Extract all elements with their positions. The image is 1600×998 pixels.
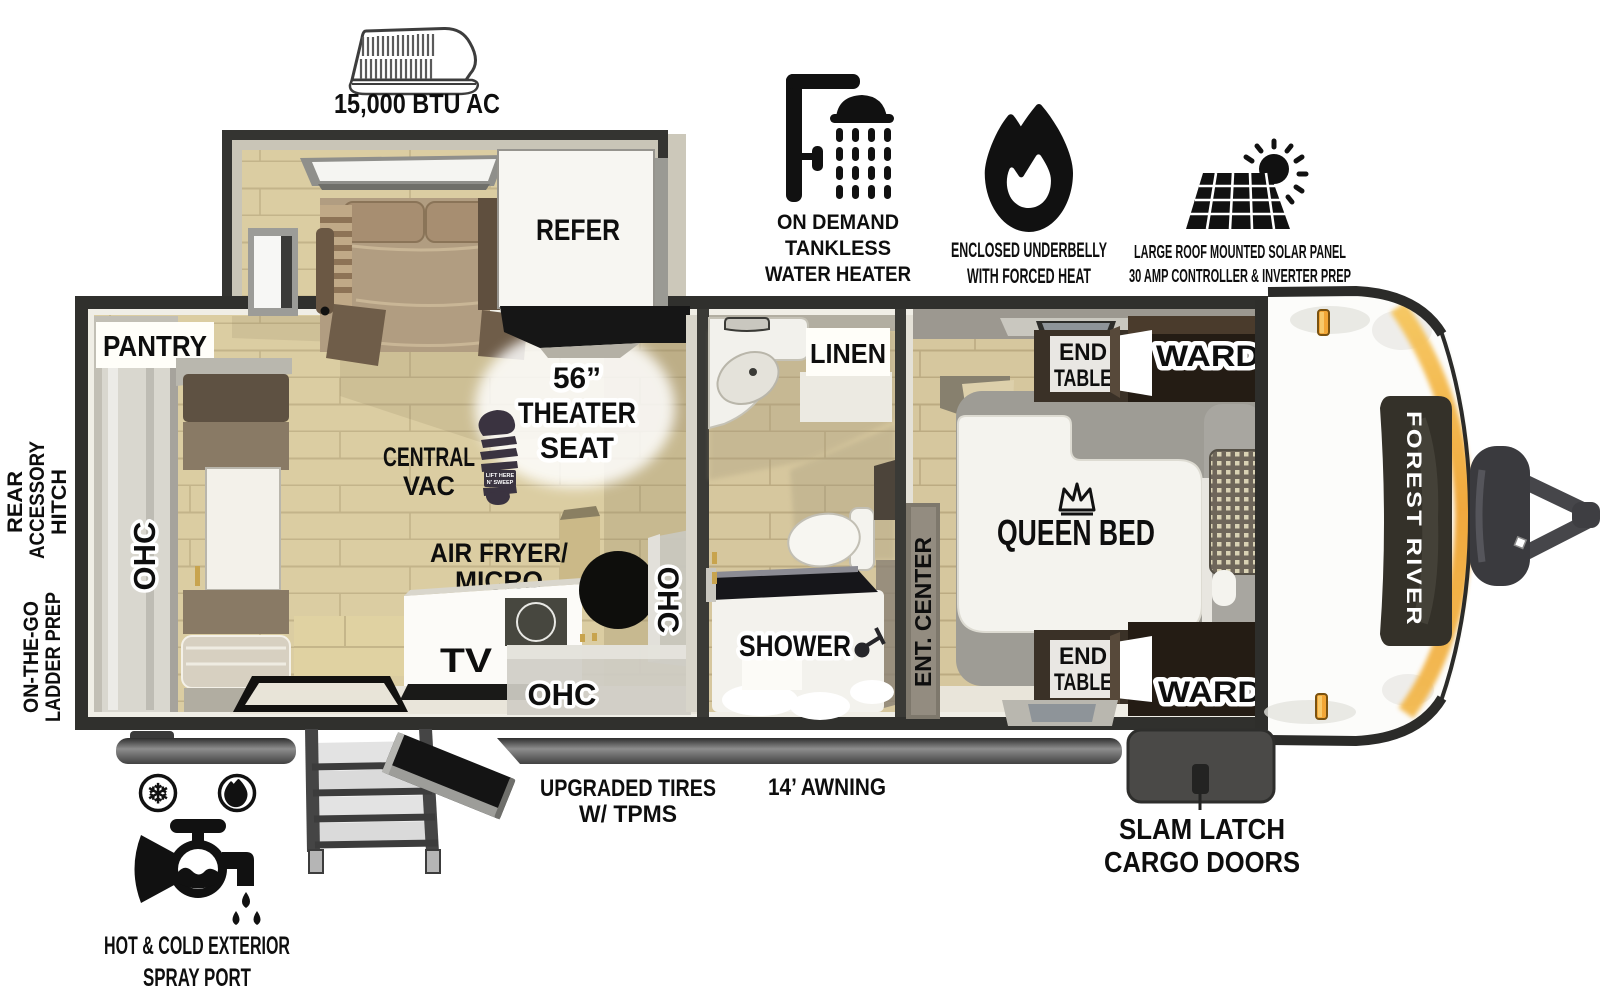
svg-text:TV: TV	[440, 642, 492, 680]
svg-text:ACCESSORY: ACCESSORY	[26, 441, 49, 559]
svg-text:W/ TPMS: W/ TPMS	[579, 801, 677, 828]
svg-text:SLAM LATCH: SLAM LATCH	[1119, 814, 1285, 846]
svg-text:WARD: WARD	[1158, 676, 1262, 709]
svg-text:WATER HEATER: WATER HEATER	[765, 263, 911, 286]
svg-text:CENTRAL: CENTRAL	[383, 442, 475, 472]
svg-text:30 AMP CONTROLLER & INVERTER P: 30 AMP CONTROLLER & INVERTER PREP	[1129, 266, 1351, 286]
svg-text:OHC: OHC	[127, 522, 162, 591]
svg-text:QUEEN BED: QUEEN BED	[997, 512, 1155, 553]
svg-text:15,000 BTU AC: 15,000 BTU AC	[334, 88, 500, 119]
svg-text:REFER: REFER	[536, 214, 620, 247]
svg-text:HOT & COLD EXTERIOR: HOT & COLD EXTERIOR	[104, 932, 290, 960]
svg-text:14’ AWNING: 14’ AWNING	[768, 774, 886, 801]
svg-text:OHC: OHC	[528, 677, 597, 712]
svg-text:TABLE: TABLE	[1054, 669, 1112, 696]
svg-text:END: END	[1059, 339, 1107, 366]
svg-text:LARGE ROOF MOUNTED SOLAR PANEL: LARGE ROOF MOUNTED SOLAR PANEL	[1134, 242, 1346, 262]
svg-text:❄: ❄	[147, 779, 170, 809]
svg-text:ON-THE-GO: ON-THE-GO	[20, 601, 43, 713]
svg-text:LINEN: LINEN	[810, 338, 886, 369]
svg-text:AIR FRYER/: AIR FRYER/	[430, 538, 568, 568]
svg-text:TANKLESS: TANKLESS	[785, 237, 891, 260]
svg-text:SEAT: SEAT	[540, 432, 614, 465]
svg-text:56”: 56”	[553, 362, 601, 395]
svg-text:END: END	[1059, 643, 1107, 670]
svg-text:REAR: REAR	[4, 471, 27, 533]
svg-text:FOREST RIVER: FOREST RIVER	[1402, 411, 1425, 627]
svg-text:SHOWER: SHOWER	[739, 630, 851, 663]
svg-text:N' SWEEP: N' SWEEP	[487, 480, 514, 486]
svg-text:UPGRADED TIRES: UPGRADED TIRES	[540, 775, 716, 802]
svg-text:WARD: WARD	[1156, 340, 1260, 373]
svg-text:OHC: OHC	[651, 567, 684, 634]
svg-text:LIFT HERE: LIFT HERE	[486, 473, 515, 479]
svg-text:ON DEMAND: ON DEMAND	[777, 211, 899, 234]
svg-text:THEATER: THEATER	[518, 397, 636, 430]
svg-text:CARGO DOORS: CARGO DOORS	[1104, 847, 1300, 879]
svg-text:ENT. CENTER: ENT. CENTER	[910, 537, 936, 687]
svg-text:LADDER PREP: LADDER PREP	[42, 592, 65, 722]
svg-text:WITH FORCED HEAT: WITH FORCED HEAT	[967, 265, 1091, 288]
svg-text:SPRAY PORT: SPRAY PORT	[143, 964, 251, 992]
svg-text:VAC: VAC	[403, 471, 455, 501]
svg-text:ENCLOSED UNDERBELLY: ENCLOSED UNDERBELLY	[951, 239, 1107, 262]
svg-text:TABLE: TABLE	[1054, 365, 1112, 392]
svg-text:HITCH: HITCH	[48, 469, 71, 535]
